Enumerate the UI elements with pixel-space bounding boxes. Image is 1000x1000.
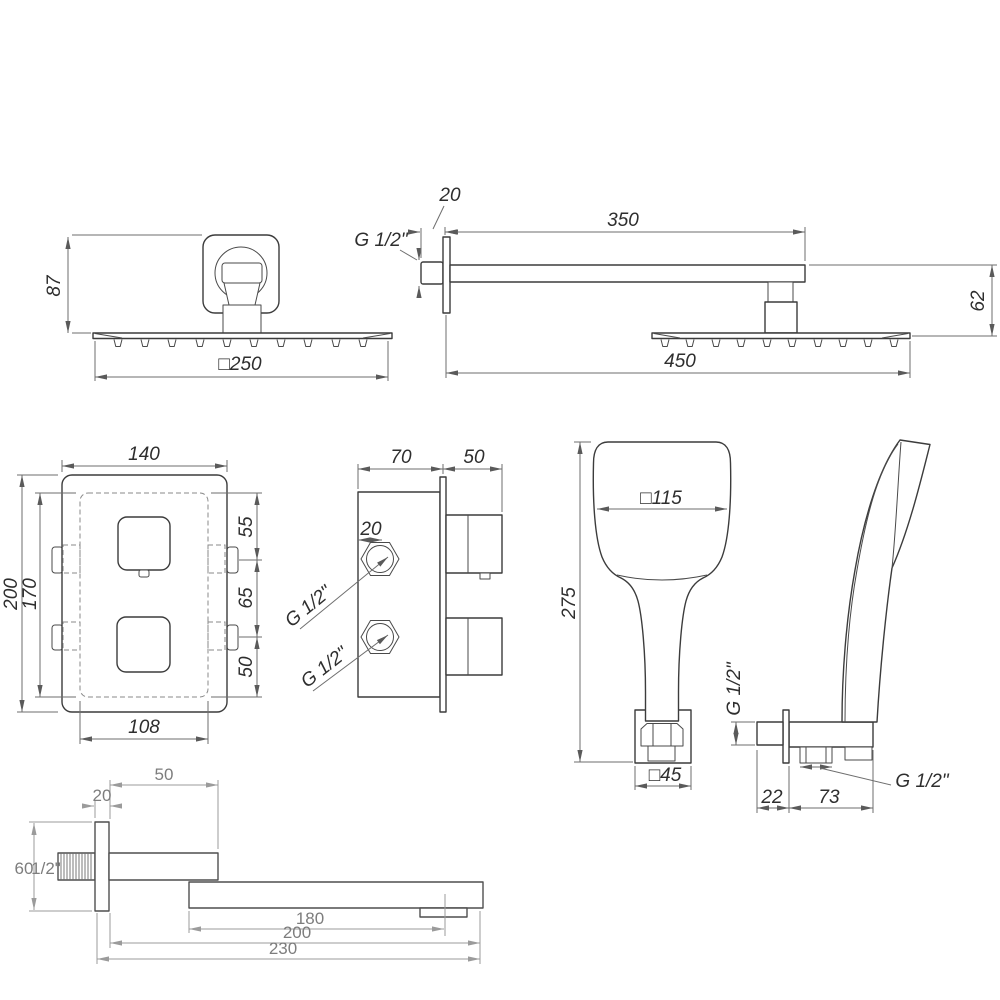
- arm-geometry: [421, 237, 910, 347]
- arm-connector: [222, 263, 262, 283]
- upper-knob: [118, 517, 170, 570]
- hand-shower-body: [593, 442, 730, 721]
- dim-label-20: 20: [93, 786, 112, 805]
- dim-label-70: 70: [390, 447, 412, 468]
- dim-label-65: 65: [236, 587, 257, 609]
- view-shower-arm-side: G 1/2" 20 350 62 450: [354, 185, 997, 378]
- mixer-side-geometry: [358, 477, 502, 712]
- dim-label-108: 108: [128, 717, 160, 738]
- dim-label-55: 55: [236, 516, 257, 538]
- connector-taper: [224, 283, 260, 305]
- lower-knob: [117, 617, 170, 672]
- dim-mixer-width: 140: [62, 444, 227, 472]
- view-spout-side: 50 20 60 1/2" 180 200 230: [15, 765, 483, 964]
- spout-body: [189, 882, 483, 908]
- dim-label-g12-outlet: G 1/2": [895, 771, 949, 792]
- dim-arm-plate: 20: [408, 185, 461, 258]
- dim-label-230: 230: [269, 939, 297, 958]
- shower-arm: [450, 265, 805, 282]
- mixer-body: [62, 475, 227, 712]
- elbow-neck: [768, 282, 793, 302]
- wall-flange: [443, 237, 450, 313]
- view-mixer-front: 140 200 170 55 65 50 108: [1, 444, 262, 744]
- dim-upper-arm: 50: [110, 765, 218, 849]
- hand-shower-side-geometry: [757, 440, 930, 763]
- nozzles: [661, 340, 898, 347]
- dim-label-22: 22: [760, 787, 783, 808]
- rain-head-geometry: [93, 235, 392, 347]
- dim-label-45: □45: [649, 765, 682, 786]
- dim-label-50: 50: [155, 765, 174, 784]
- dim-label-170: 170: [20, 578, 41, 610]
- upper-knob-notch: [480, 573, 490, 579]
- hose-nut: [641, 724, 683, 747]
- dim-label-62: 62: [968, 290, 989, 312]
- shower-set-dimension-drawing: 87 □250: [0, 0, 1000, 1000]
- upper-arm: [109, 853, 218, 880]
- dim-label-g12-inlet: G 1/2": [724, 661, 745, 715]
- dim-label-87: 87: [44, 274, 65, 297]
- dim-label-half-inch: 1/2": [31, 859, 61, 878]
- view-rain-shower-head-front: 87 □250: [44, 235, 392, 381]
- technical-drawing-sheet: 87 □250: [0, 0, 1000, 1000]
- mixer-front-geometry: [52, 475, 238, 712]
- dim-label-450: 450: [664, 351, 696, 372]
- dim-label-50: 50: [236, 656, 257, 678]
- upper-knob-pin: [139, 570, 149, 577]
- hose-connector: [648, 746, 675, 761]
- dim-label-200: 200: [1, 578, 22, 611]
- stem: [223, 305, 261, 333]
- wall-flange: [440, 477, 446, 712]
- dim-label-140: 140: [128, 444, 160, 465]
- shower-plate: [652, 333, 910, 339]
- dim-label-115: □115: [640, 488, 682, 509]
- elbow-block: [765, 302, 797, 333]
- outlet-fitting: [800, 747, 832, 763]
- spout-geometry: [58, 822, 483, 917]
- dim-label-250: □250: [218, 354, 262, 375]
- wall-flange: [783, 710, 789, 763]
- view-hand-shower-front: □115 275 □45: [559, 442, 731, 790]
- dim-rain-head-width: □250: [95, 341, 388, 381]
- holder-arm: [789, 722, 873, 747]
- dim-label-20: 20: [438, 185, 461, 206]
- tab-right-lower: [227, 625, 238, 650]
- dim-arm-thread: G 1/2": [354, 230, 419, 296]
- wall-connector: [421, 262, 443, 284]
- dim-label-350: 350: [607, 210, 639, 231]
- dim-label-50: 50: [463, 447, 485, 468]
- dim-label-20: 20: [359, 519, 382, 540]
- dim-wall-plate: 20: [82, 786, 122, 818]
- dim-fitting: 20: [358, 519, 382, 540]
- dim-label-73: 73: [818, 787, 840, 808]
- outlet: [420, 908, 467, 917]
- upper-knob-side: [446, 515, 502, 573]
- dim-rain-head-height: 87: [44, 235, 202, 333]
- dim-base-width: □45: [635, 765, 691, 790]
- view-mixer-side: 70 50 20 G 1/2" G 1/2": [281, 447, 502, 712]
- dim-overall-length: 230: [97, 913, 480, 964]
- inlet-connector: [757, 722, 783, 745]
- lower-knob-side: [446, 618, 502, 675]
- tab-right-upper: [227, 547, 238, 573]
- nozzles: [114, 340, 367, 347]
- dim-inlet-thread: G 1/2": [724, 661, 755, 745]
- dim-arm-length: 350: [445, 210, 805, 261]
- dim-label-275: 275: [559, 587, 580, 620]
- dim-head-drop: 62: [809, 265, 997, 336]
- wall-flange: [95, 822, 109, 911]
- hose-stub: [845, 747, 872, 760]
- shower-plate: [93, 333, 392, 339]
- view-hand-shower-side: G 1/2" 22 73 G 1/2": [724, 440, 950, 813]
- dim-label-g12: G 1/2": [354, 230, 408, 251]
